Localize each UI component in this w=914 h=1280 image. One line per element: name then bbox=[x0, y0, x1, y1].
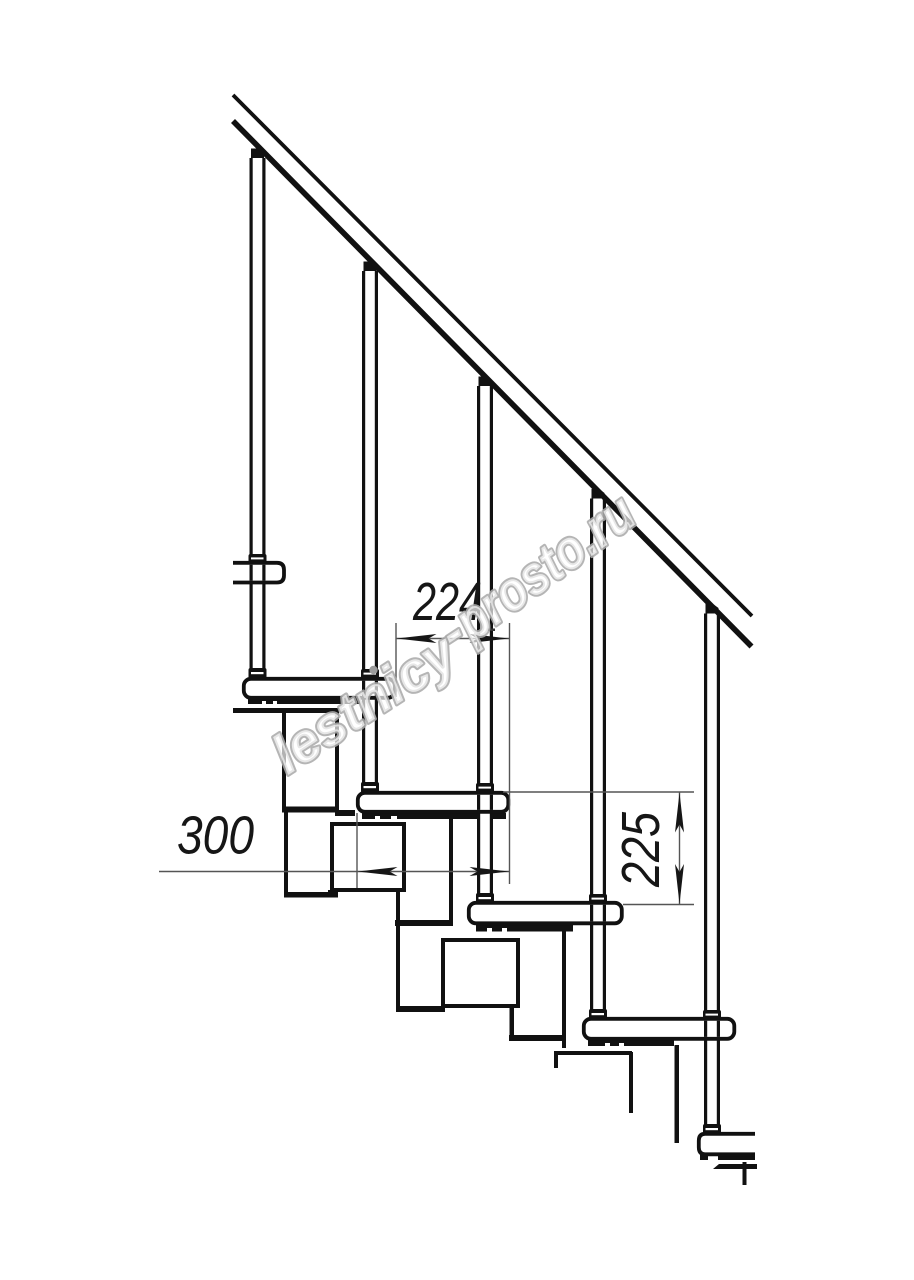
svg-text:300: 300 bbox=[177, 806, 254, 866]
svg-text:225: 225 bbox=[611, 811, 671, 888]
